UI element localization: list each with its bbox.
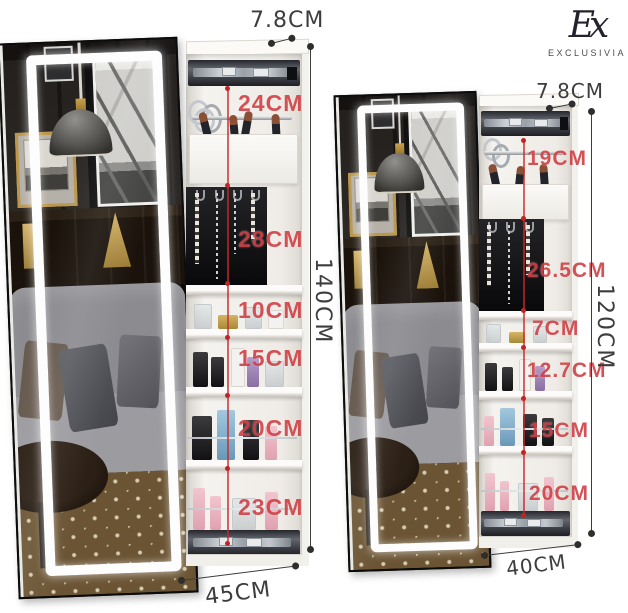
- section-dim-label: 23CM: [238, 494, 303, 521]
- rail-tag: [504, 518, 517, 526]
- rail-stop: [560, 117, 568, 130]
- drawer-slide-rail: [188, 530, 299, 556]
- chain-necklace: [508, 225, 510, 304]
- chain-necklace: [234, 193, 236, 254]
- led-light-border: [357, 103, 478, 553]
- red-dot: [225, 183, 230, 188]
- left-width-line: [181, 565, 296, 581]
- led-light-border: [26, 50, 181, 576]
- right-depth-label: 7.8CM: [536, 79, 604, 103]
- section-dim-label: 7CM: [532, 317, 579, 341]
- cosmetic-bottle: [484, 416, 494, 446]
- brush-holder: [482, 184, 570, 220]
- rail-tag: [527, 519, 541, 527]
- rail-stop: [287, 67, 297, 80]
- left-height-label: 140CM: [310, 258, 335, 344]
- red-dot: [225, 466, 230, 471]
- left-width-label: 45CM: [204, 577, 273, 610]
- cosmetic-bottle: [211, 357, 224, 387]
- red-dot: [521, 450, 526, 455]
- section-dim-label: 15CM: [529, 419, 589, 443]
- exclusivia-monogram-icon: Ex: [548, 6, 624, 46]
- brand-name: EXCLUSIVIA: [548, 48, 624, 58]
- cosmetic-box: [217, 410, 235, 460]
- left-mirror-door: [0, 37, 199, 600]
- red-dot: [225, 281, 230, 286]
- glass-jar: [194, 304, 212, 329]
- red-dot: [225, 393, 230, 398]
- shelf: [186, 329, 302, 339]
- pearl-necklace: [487, 225, 491, 286]
- section-dim-label: 28CM: [238, 226, 303, 253]
- left-depth-label: 7.8CM: [250, 8, 324, 33]
- drawer-slide-rail: [481, 111, 570, 136]
- red-dot: [521, 345, 526, 350]
- red-dot: [225, 86, 230, 91]
- shelf: [186, 285, 302, 295]
- shelf: [186, 387, 302, 397]
- chain-necklace: [216, 193, 218, 279]
- section-dim-label: 20CM: [238, 415, 303, 442]
- pearl-necklace: [195, 193, 199, 264]
- section-dim-label: 20CM: [529, 482, 589, 506]
- cosmetic-bottle: [485, 363, 497, 391]
- rail-tag: [246, 538, 262, 547]
- cabinet-base: [186, 554, 302, 566]
- red-dot: [521, 216, 526, 221]
- rail-tag: [509, 118, 522, 126]
- product-dimensions-image: Ex EXCLUSIVIA: [0, 0, 628, 613]
- red-dot: [521, 138, 526, 143]
- shelf: [186, 460, 302, 470]
- left-red-measure-line: [227, 88, 229, 545]
- cosmetic-box: [500, 408, 515, 446]
- rail-chrome: [193, 538, 291, 546]
- red-dot: [521, 513, 526, 518]
- glass-jar: [486, 324, 501, 343]
- rail-tag: [534, 119, 548, 127]
- right-red-measure-line: [523, 140, 525, 515]
- right-height-label: 120CM: [592, 284, 617, 370]
- cosmetic-bottle: [193, 352, 208, 387]
- rail-tag: [253, 68, 269, 77]
- cosmetic-bottle: [502, 367, 513, 391]
- cosmetic-bottle: [500, 481, 509, 511]
- section-dim-label: 19CM: [527, 147, 587, 171]
- brand-logo: Ex EXCLUSIVIA: [548, 6, 624, 58]
- red-dot: [225, 335, 230, 340]
- drawer-slide-rail: [188, 60, 299, 86]
- rail-chrome: [484, 119, 563, 127]
- section-dim-label: 15CM: [238, 345, 303, 372]
- red-dot: [521, 396, 526, 401]
- rail-chrome: [484, 519, 563, 527]
- red-dot: [225, 541, 230, 546]
- section-dim-label: 24CM: [238, 90, 303, 117]
- rail-chrome: [193, 68, 291, 76]
- brush-holder: [189, 134, 298, 184]
- rail-tag: [222, 67, 236, 76]
- spray-bottle: [485, 473, 495, 511]
- right-width-label: 40CM: [505, 549, 568, 580]
- section-dim-label: 26.5CM: [527, 259, 607, 283]
- section-dim-label: 10CM: [238, 297, 303, 324]
- red-dot: [521, 308, 526, 313]
- cosmetic-bottle: [210, 496, 221, 530]
- right-mirror-door: [334, 91, 492, 572]
